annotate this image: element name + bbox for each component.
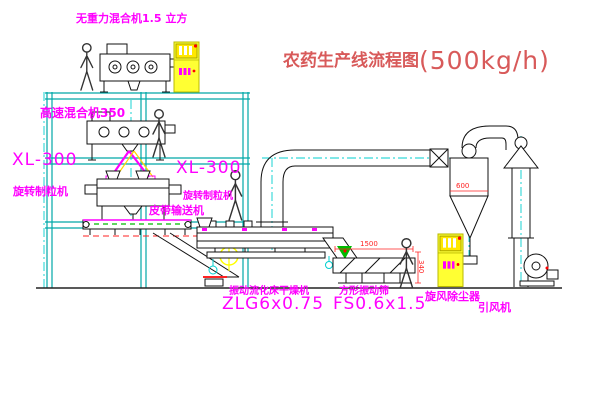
- title-name: 农药生产线流程图: [283, 48, 419, 70]
- granulator-left-model-label: XL-300: [12, 152, 77, 169]
- dryer-model-label: ZLG6x0.75: [222, 296, 324, 313]
- control-cabinet-1: [174, 42, 199, 92]
- top-mixer-label: 无重力混合机1.5 立方: [76, 13, 187, 24]
- fluid-bed-dryer: [197, 218, 333, 258]
- sieve-model-label: FS0.6x1.5: [333, 296, 426, 313]
- person-top-floor: [81, 44, 93, 90]
- induced-draft-fan: [520, 254, 558, 286]
- sieve-height-dimension: 340: [417, 260, 424, 273]
- granulator-left-name-label: 旋转制粒机: [13, 186, 68, 197]
- title-capacity: (500kg/h): [419, 48, 550, 73]
- cyclone-dia-dimension: 600: [456, 183, 469, 190]
- belt-conveyor-label: 皮带输送机: [149, 205, 204, 216]
- granulator-right-name-label: 旋转制粒机: [183, 192, 233, 202]
- fan-label: 引风机: [478, 302, 511, 313]
- flow-diagram-canvas: 无重力混合机1.5 立方 农药生产线流程图 (500kg/h) 高速混合机350…: [0, 0, 600, 403]
- control-cabinet-2: [438, 234, 463, 287]
- sieve-length-dimension: 1500: [360, 241, 378, 248]
- gravity-free-mixer: [100, 44, 182, 92]
- high-speed-mixer-label: 高速混合机350: [40, 107, 125, 119]
- cyclone-label: 旋风除尘器: [425, 291, 480, 302]
- diagram-title: 农药生产线流程图 (500kg/h): [283, 48, 550, 73]
- granulator-right-model-label: XL-300: [176, 160, 241, 177]
- exhaust-duct: [256, 149, 448, 227]
